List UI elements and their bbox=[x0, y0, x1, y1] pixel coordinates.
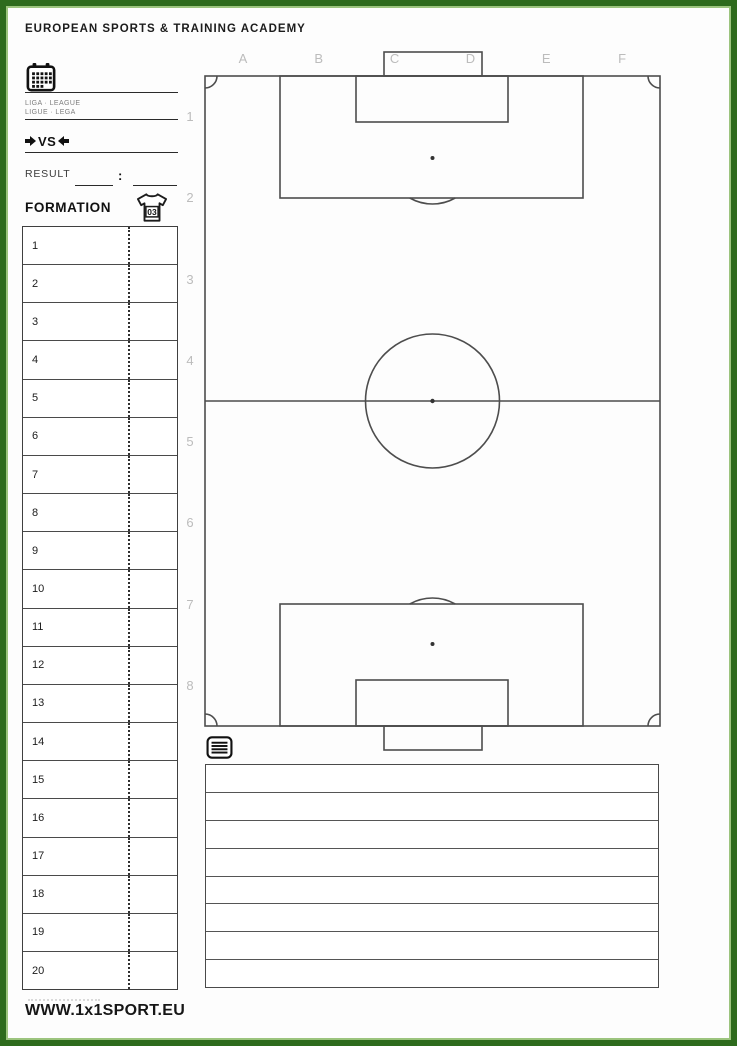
formation-row[interactable]: 19 bbox=[23, 914, 177, 952]
formation-row[interactable]: 11 bbox=[23, 609, 177, 647]
formation-row[interactable]: 14 bbox=[23, 723, 177, 761]
result-home-field[interactable] bbox=[75, 172, 113, 186]
pitch-row-label: 4 bbox=[181, 320, 199, 401]
jersey-icon: 03 bbox=[135, 192, 169, 223]
arrow-left-icon bbox=[58, 136, 69, 146]
result-label: RESULT bbox=[25, 168, 70, 180]
bottom-goal-area bbox=[356, 680, 508, 726]
formation-row[interactable]: 7 bbox=[23, 456, 177, 494]
formation-row-divider bbox=[128, 685, 130, 722]
formation-row-divider bbox=[128, 952, 130, 989]
formation-row-number: 10 bbox=[23, 583, 44, 595]
formation-row-number: 12 bbox=[23, 659, 44, 671]
footer-watermark bbox=[28, 999, 100, 1001]
notes-icon bbox=[206, 736, 233, 759]
notes-line[interactable] bbox=[206, 849, 658, 877]
top-penalty-area bbox=[280, 76, 583, 198]
formation-row-divider bbox=[128, 494, 130, 531]
formation-row[interactable]: 8 bbox=[23, 494, 177, 532]
formation-row[interactable]: 9 bbox=[23, 532, 177, 570]
formation-row-number: 18 bbox=[23, 888, 44, 900]
formation-row[interactable]: 1 bbox=[23, 227, 177, 265]
jersey-number: 03 bbox=[147, 207, 157, 217]
formation-row[interactable]: 4 bbox=[23, 341, 177, 379]
pitch-row-label: 7 bbox=[181, 564, 199, 645]
formation-table: 1 2 3 4 5 6 7 8 bbox=[22, 226, 178, 990]
formation-row[interactable]: 5 bbox=[23, 380, 177, 418]
bottom-penalty-arc bbox=[410, 598, 455, 604]
formation-row-divider bbox=[128, 265, 130, 302]
corner-arc-bottom-left bbox=[205, 714, 217, 726]
result-colon: : bbox=[118, 168, 122, 183]
formation-row[interactable]: 20 bbox=[23, 952, 177, 989]
soccer-pitch-diagram bbox=[203, 50, 662, 752]
formation-row-number: 6 bbox=[23, 430, 38, 442]
pitch-row-label: 3 bbox=[181, 239, 199, 320]
notes-line[interactable] bbox=[206, 904, 658, 932]
top-penalty-arc bbox=[410, 198, 455, 204]
calendar-icon bbox=[25, 62, 57, 92]
pitch-row-label: 8 bbox=[181, 645, 199, 726]
formation-row-divider bbox=[128, 532, 130, 569]
formation-row-divider bbox=[128, 914, 130, 951]
top-penalty-spot bbox=[431, 156, 435, 160]
formation-row-number: 2 bbox=[23, 278, 38, 290]
notes-line[interactable] bbox=[206, 932, 658, 960]
notes-area bbox=[205, 764, 659, 988]
formation-row-number: 20 bbox=[23, 965, 44, 977]
formation-row-divider bbox=[128, 799, 130, 836]
formation-row-divider bbox=[128, 341, 130, 378]
notes-line[interactable] bbox=[206, 793, 658, 821]
formation-row[interactable]: 13 bbox=[23, 685, 177, 723]
formation-row[interactable]: 15 bbox=[23, 761, 177, 799]
league-field-line[interactable] bbox=[25, 119, 178, 120]
formation-row-number: 7 bbox=[23, 469, 38, 481]
formation-row[interactable]: 6 bbox=[23, 418, 177, 456]
formation-row-divider bbox=[128, 418, 130, 455]
league-label: LIGA · LEAGUE LIGUE · LEGA bbox=[25, 99, 80, 117]
formation-row-number: 19 bbox=[23, 926, 44, 938]
corner-arc-top-right bbox=[648, 76, 660, 88]
notes-line[interactable] bbox=[206, 877, 658, 905]
formation-row-divider bbox=[128, 647, 130, 684]
corner-arc-bottom-right bbox=[648, 714, 660, 726]
formation-row-divider bbox=[128, 456, 130, 493]
formation-row-divider bbox=[128, 303, 130, 340]
formation-row[interactable]: 16 bbox=[23, 799, 177, 837]
formation-row-divider bbox=[128, 876, 130, 913]
formation-row-divider bbox=[128, 723, 130, 760]
bottom-penalty-area bbox=[280, 604, 583, 726]
formation-row-divider bbox=[128, 609, 130, 646]
corner-arc-top-left bbox=[205, 76, 217, 88]
center-spot bbox=[430, 399, 434, 403]
formation-row-divider bbox=[128, 227, 130, 264]
formation-row-number: 3 bbox=[23, 316, 38, 328]
versus-row: VS bbox=[25, 133, 69, 149]
formation-row[interactable]: 10 bbox=[23, 570, 177, 608]
footer-website[interactable]: WWW.1x1SPORT.EU bbox=[25, 1002, 185, 1020]
formation-row-divider bbox=[128, 761, 130, 798]
notes-line[interactable] bbox=[206, 821, 658, 849]
pitch-row-label: 2 bbox=[181, 157, 199, 238]
top-goal-area bbox=[356, 76, 508, 122]
formation-title: FORMATION bbox=[25, 200, 111, 215]
formation-row-divider bbox=[128, 570, 130, 607]
formation-row-number: 9 bbox=[23, 545, 38, 557]
notes-line[interactable] bbox=[206, 960, 658, 987]
pitch-row-label: 6 bbox=[181, 482, 199, 563]
formation-row-number: 13 bbox=[23, 697, 44, 709]
formation-row-number: 1 bbox=[23, 240, 38, 252]
bottom-goal bbox=[384, 726, 482, 750]
formation-row-number: 14 bbox=[23, 736, 44, 748]
result-away-field[interactable] bbox=[133, 172, 177, 186]
versus-label: VS bbox=[38, 134, 56, 149]
notes-line[interactable] bbox=[206, 765, 658, 793]
formation-row-divider bbox=[128, 838, 130, 875]
formation-row-divider bbox=[128, 380, 130, 417]
formation-row-number: 15 bbox=[23, 774, 44, 786]
formation-row[interactable]: 12 bbox=[23, 647, 177, 685]
pitch-row-label: 1 bbox=[181, 76, 199, 157]
arrow-right-icon bbox=[25, 136, 36, 146]
formation-row-number: 8 bbox=[23, 507, 38, 519]
versus-field-line[interactable] bbox=[25, 152, 178, 153]
formation-row[interactable]: 17 bbox=[23, 838, 177, 876]
formation-row-number: 17 bbox=[23, 850, 44, 862]
formation-row-number: 4 bbox=[23, 354, 38, 366]
formation-row[interactable]: 3 bbox=[23, 303, 177, 341]
formation-row[interactable]: 2 bbox=[23, 265, 177, 303]
date-field-line[interactable] bbox=[25, 92, 178, 93]
formation-row[interactable]: 18 bbox=[23, 876, 177, 914]
pitch-row-label: 5 bbox=[181, 401, 199, 482]
page-title: EUROPEAN SPORTS & TRAINING ACADEMY bbox=[25, 23, 306, 35]
formation-row-number: 5 bbox=[23, 392, 38, 404]
top-goal bbox=[384, 52, 482, 76]
formation-row-number: 16 bbox=[23, 812, 44, 824]
bottom-penalty-spot bbox=[431, 642, 435, 646]
pitch-row-labels: 12345678 bbox=[181, 76, 199, 726]
formation-row-number: 11 bbox=[23, 621, 43, 633]
